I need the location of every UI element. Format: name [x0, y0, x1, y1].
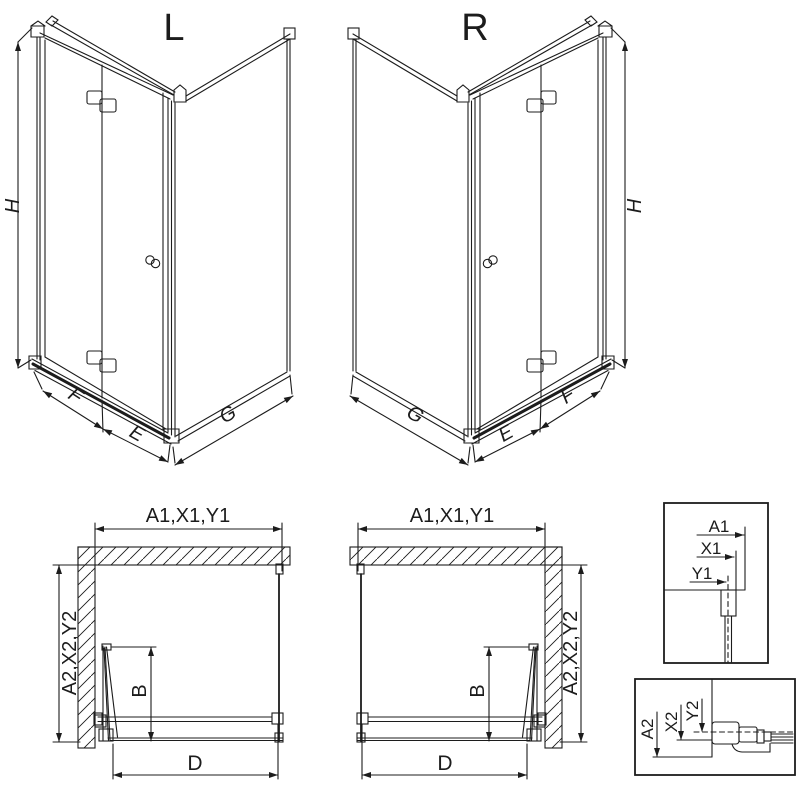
iso-left-dim-h: H: [2, 198, 24, 213]
iso-right-dim-g: G: [403, 401, 427, 428]
iso-left-dim-g: G: [216, 401, 240, 428]
plan-right-dim-width: A1,X1,Y1: [410, 505, 495, 527]
dim-height-h: [15, 28, 32, 368]
corner-post: [164, 85, 186, 443]
door-handle: [146, 256, 160, 268]
iso-right-dim-e: E: [495, 421, 518, 447]
iso-left-dim-e: E: [126, 421, 149, 447]
plan-right-dim-d: D: [437, 752, 452, 775]
labels: L R H F E G H F E G A1,X1,Y1 A2,X2,Y2 B …: [2, 7, 729, 775]
drawing-canvas: L R H F E G H F E G A1,X1,Y1 A2,X2,Y2 B …: [0, 0, 800, 800]
detail-wall-dim-y1: Y1: [692, 564, 713, 583]
shower-enclosure-technical-drawing: L R H F E G H F E G A1,X1,Y1 A2,X2,Y2 B …: [0, 0, 800, 800]
detail-floor-profile: [635, 679, 795, 775]
door-glass-top-edge: [45, 38, 170, 99]
wall-profile: [29, 21, 45, 369]
folding-door-plan: [95, 644, 118, 741]
plan-right-dim-b: B: [467, 684, 489, 697]
plan-right-dim-depth: A2,X2,Y2: [560, 611, 582, 696]
support-bar: [46, 16, 175, 95]
plan-left-dim-d: D: [187, 752, 202, 775]
iso-left-title: L: [163, 7, 184, 49]
plan-left-dim-width: A1,X1,Y1: [146, 505, 231, 527]
iso-right-title: R: [461, 7, 488, 49]
iso-right-dim-h: H: [624, 198, 646, 213]
plan-left-dim-b: B: [129, 684, 151, 697]
detail-wall-dim-a1: A1: [709, 517, 730, 536]
door-wall-top-edge: [40, 33, 173, 95]
side-panel: [176, 28, 295, 441]
detail-floor-dim-x2: X2: [662, 712, 681, 733]
iso-view-right-geometry: [348, 16, 628, 465]
detail-floor-dim-y2: Y2: [683, 701, 702, 722]
iso-view-left-geometry: [15, 16, 295, 465]
rail-plan: [94, 713, 283, 741]
detail-wall-dim-x1: X1: [701, 539, 722, 558]
side-panel-plan: [272, 564, 283, 742]
plan-left-dim-depth: A2,X2,Y2: [59, 611, 81, 696]
detail-floor-dim-a2: A2: [638, 719, 657, 740]
